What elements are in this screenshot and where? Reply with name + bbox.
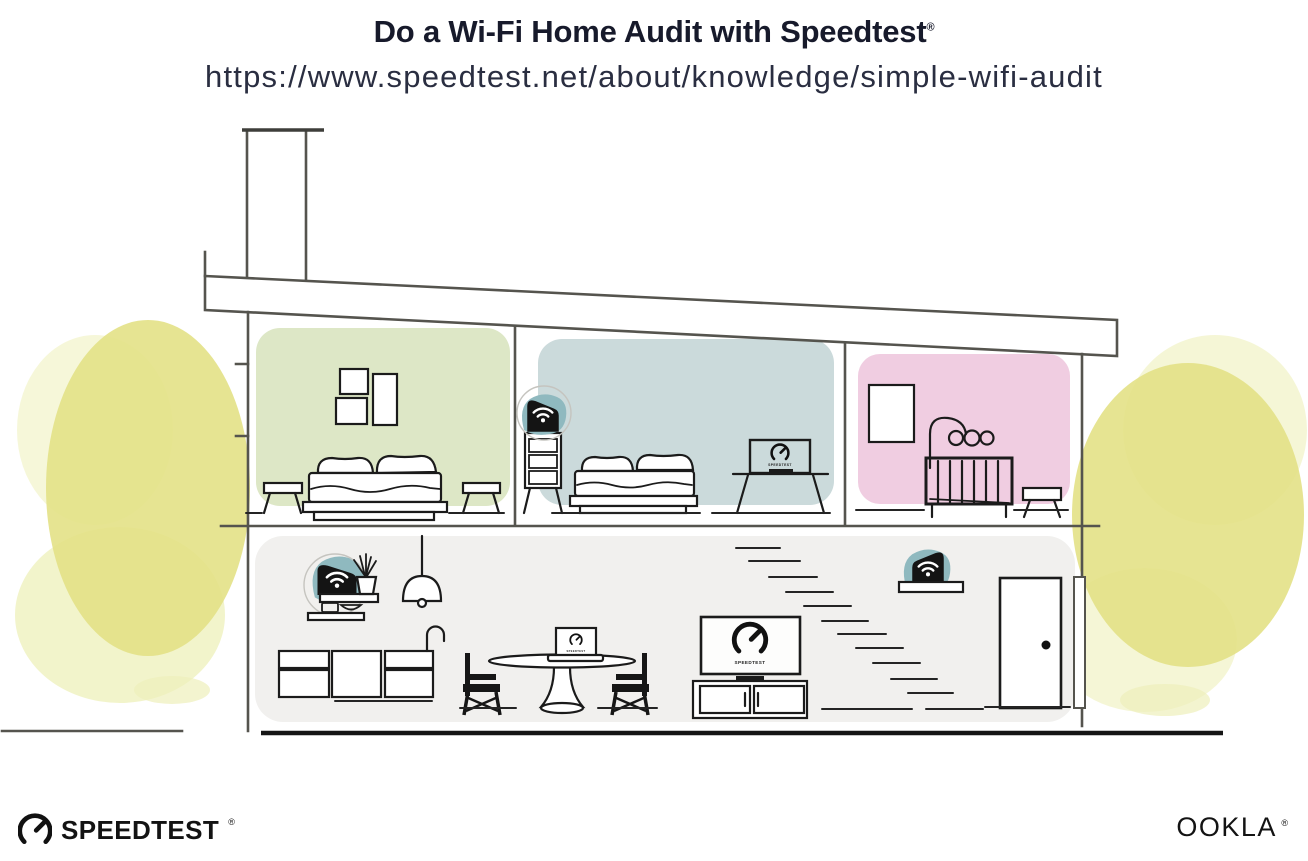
screen-label: SPEEDTEST <box>768 463 792 467</box>
speedtest-wordmark: SPEEDTEST <box>61 815 219 846</box>
page-title-text: Do a Wi-Fi Home Audit with Speedtest <box>374 14 927 49</box>
laptop: SPEEDTEST <box>548 628 603 661</box>
tree-left <box>15 320 250 704</box>
ookla-wordmark: OOKLA <box>1176 812 1277 842</box>
picture-frame <box>869 385 914 442</box>
doorknob <box>1042 641 1051 650</box>
door-frame-pillar <box>1074 577 1085 708</box>
registered-mark: ® <box>1281 818 1288 828</box>
tv-console <box>693 681 807 718</box>
page-title: Do a Wi-Fi Home Audit with Speedtest® <box>0 14 1308 50</box>
chimney <box>242 130 324 283</box>
picture-frames <box>336 369 397 425</box>
page-url: https://www.speedtest.net/about/knowledg… <box>0 59 1308 95</box>
screen-label: SPEEDTEST <box>566 649 585 653</box>
registered-mark: ® <box>228 817 235 827</box>
registered-mark: ® <box>926 22 934 34</box>
house-illustration: SPEEDTEST <box>0 0 1308 861</box>
speedtest-logo: SPEEDTEST ® <box>18 813 235 847</box>
front-door <box>1000 578 1061 708</box>
screen-label: SPEEDTEST <box>735 660 766 665</box>
header: Do a Wi-Fi Home Audit with Speedtest® ht… <box>0 14 1308 95</box>
wall-shelf <box>899 582 963 592</box>
speedtest-gauge-icon <box>18 813 52 847</box>
ookla-logo: OOKLA ® <box>1176 812 1288 843</box>
living-room-tv: SPEEDTEST <box>701 617 800 680</box>
